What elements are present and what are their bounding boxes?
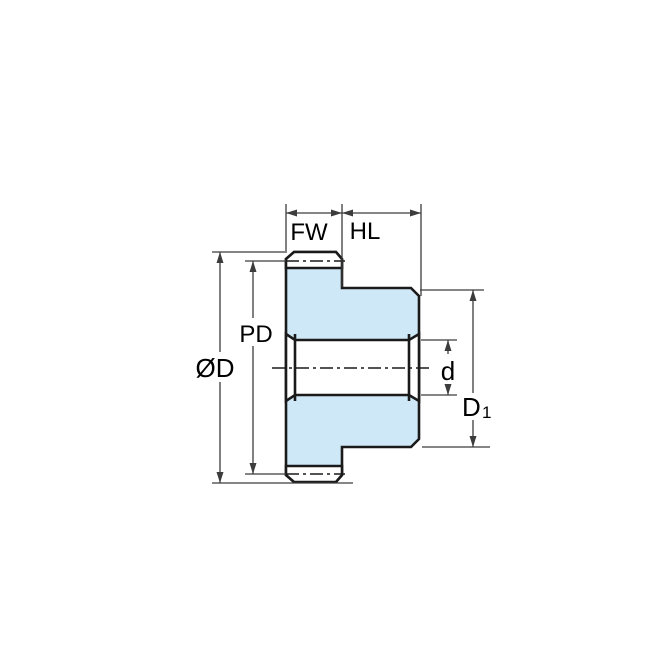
hl-label: HL xyxy=(350,218,381,245)
hl-arrow-left xyxy=(342,210,353,217)
d1-arrow-bottom xyxy=(470,436,477,447)
d1-label-subscript: 1 xyxy=(482,403,491,422)
d-label: d xyxy=(441,356,455,386)
fw-label: FW xyxy=(290,219,328,246)
gear-cross-section-svg: FW HL ØD PD xyxy=(0,0,670,670)
pd-arrow-top xyxy=(250,261,257,272)
hl-arrow-right xyxy=(410,210,421,217)
pd-arrow-bottom xyxy=(250,463,257,474)
gear-part xyxy=(286,252,419,482)
d-arrow-top xyxy=(445,340,452,351)
d1-label: D xyxy=(462,392,481,422)
top-tooth xyxy=(286,252,342,268)
d1-dimension: D 1 xyxy=(420,290,497,447)
od-arrow-top xyxy=(217,252,224,263)
od-label: ØD xyxy=(196,353,235,383)
fw-arrow-right xyxy=(331,210,342,217)
d1-arrow-top xyxy=(470,290,477,301)
pd-label: PD xyxy=(239,321,272,348)
od-arrow-bottom xyxy=(217,472,224,483)
gear-dimension-diagram: FW HL ØD PD xyxy=(0,0,670,670)
fw-arrow-left xyxy=(286,210,297,217)
